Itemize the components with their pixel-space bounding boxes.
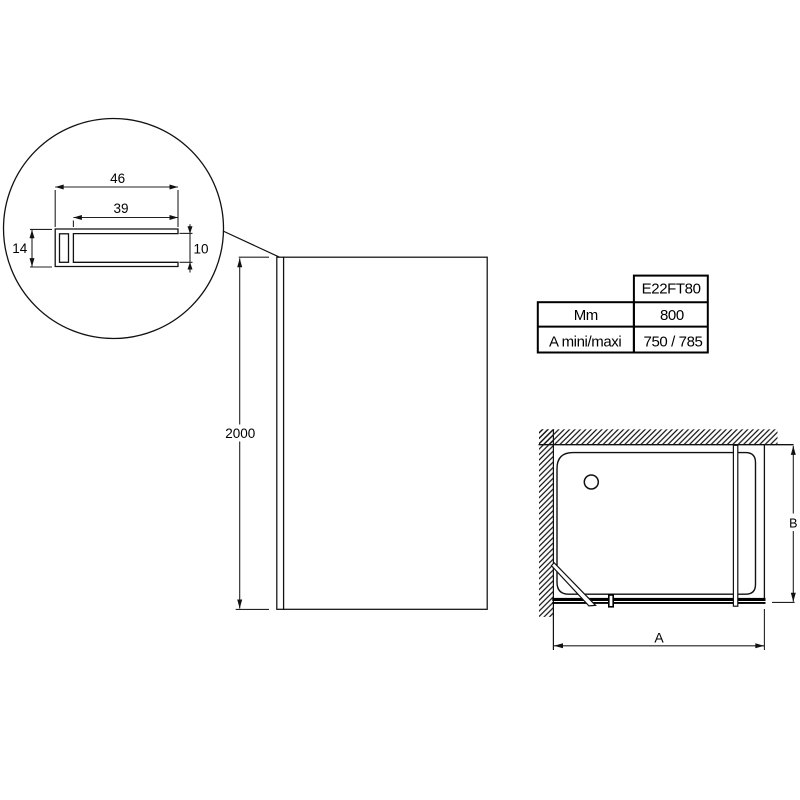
svg-text:E22FT80: E22FT80 bbox=[642, 280, 701, 297]
svg-text:800: 800 bbox=[660, 307, 684, 324]
svg-text:A mini/maxi: A mini/maxi bbox=[549, 333, 621, 350]
svg-text:10: 10 bbox=[194, 241, 209, 256]
svg-text:Mm: Mm bbox=[574, 307, 598, 324]
svg-text:A: A bbox=[654, 630, 664, 646]
svg-text:14: 14 bbox=[12, 241, 28, 256]
svg-text:B: B bbox=[789, 517, 797, 531]
svg-text:46: 46 bbox=[110, 171, 125, 186]
svg-text:750 / 785: 750 / 785 bbox=[644, 333, 703, 350]
svg-text:2000: 2000 bbox=[225, 426, 255, 441]
svg-text:39: 39 bbox=[113, 201, 128, 216]
